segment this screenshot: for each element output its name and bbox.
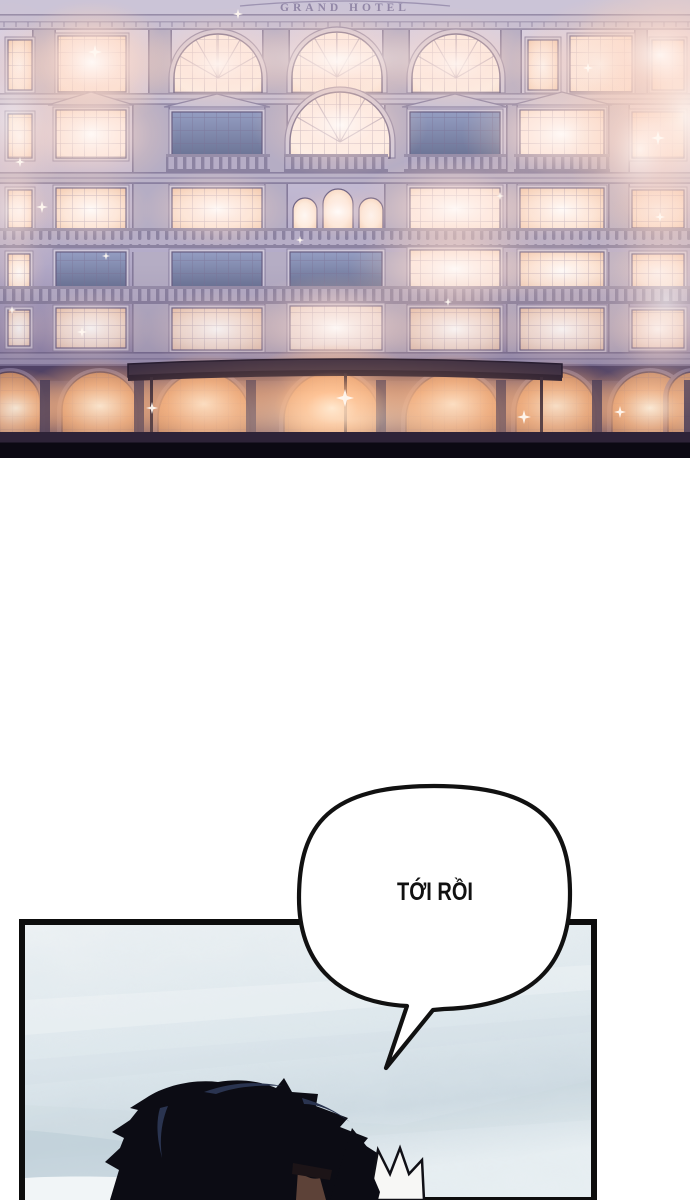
svg-text:TỚI RỒI: TỚI RỒI [397, 876, 473, 906]
